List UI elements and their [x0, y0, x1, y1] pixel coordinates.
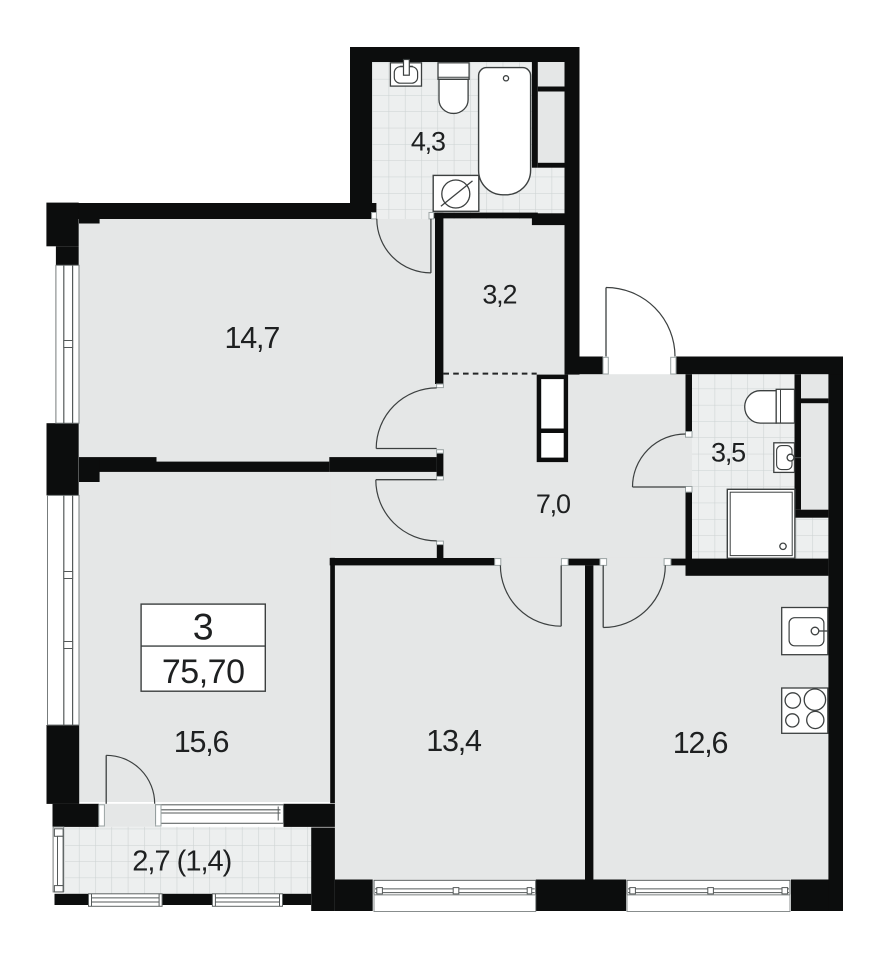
svg-text:7,0: 7,0	[536, 489, 570, 519]
svg-text:12,6: 12,6	[673, 726, 728, 760]
svg-text:3,5: 3,5	[711, 438, 745, 468]
svg-text:3,2: 3,2	[482, 280, 516, 310]
svg-text:15,6: 15,6	[174, 725, 229, 759]
svg-text:13,4: 13,4	[426, 724, 482, 758]
svg-text:4,3: 4,3	[411, 126, 445, 156]
svg-text:3: 3	[193, 606, 214, 648]
svg-text:14,7: 14,7	[225, 321, 280, 355]
svg-text:2,7 (1,4): 2,7 (1,4)	[132, 845, 231, 877]
svg-text:75,70: 75,70	[162, 653, 245, 691]
